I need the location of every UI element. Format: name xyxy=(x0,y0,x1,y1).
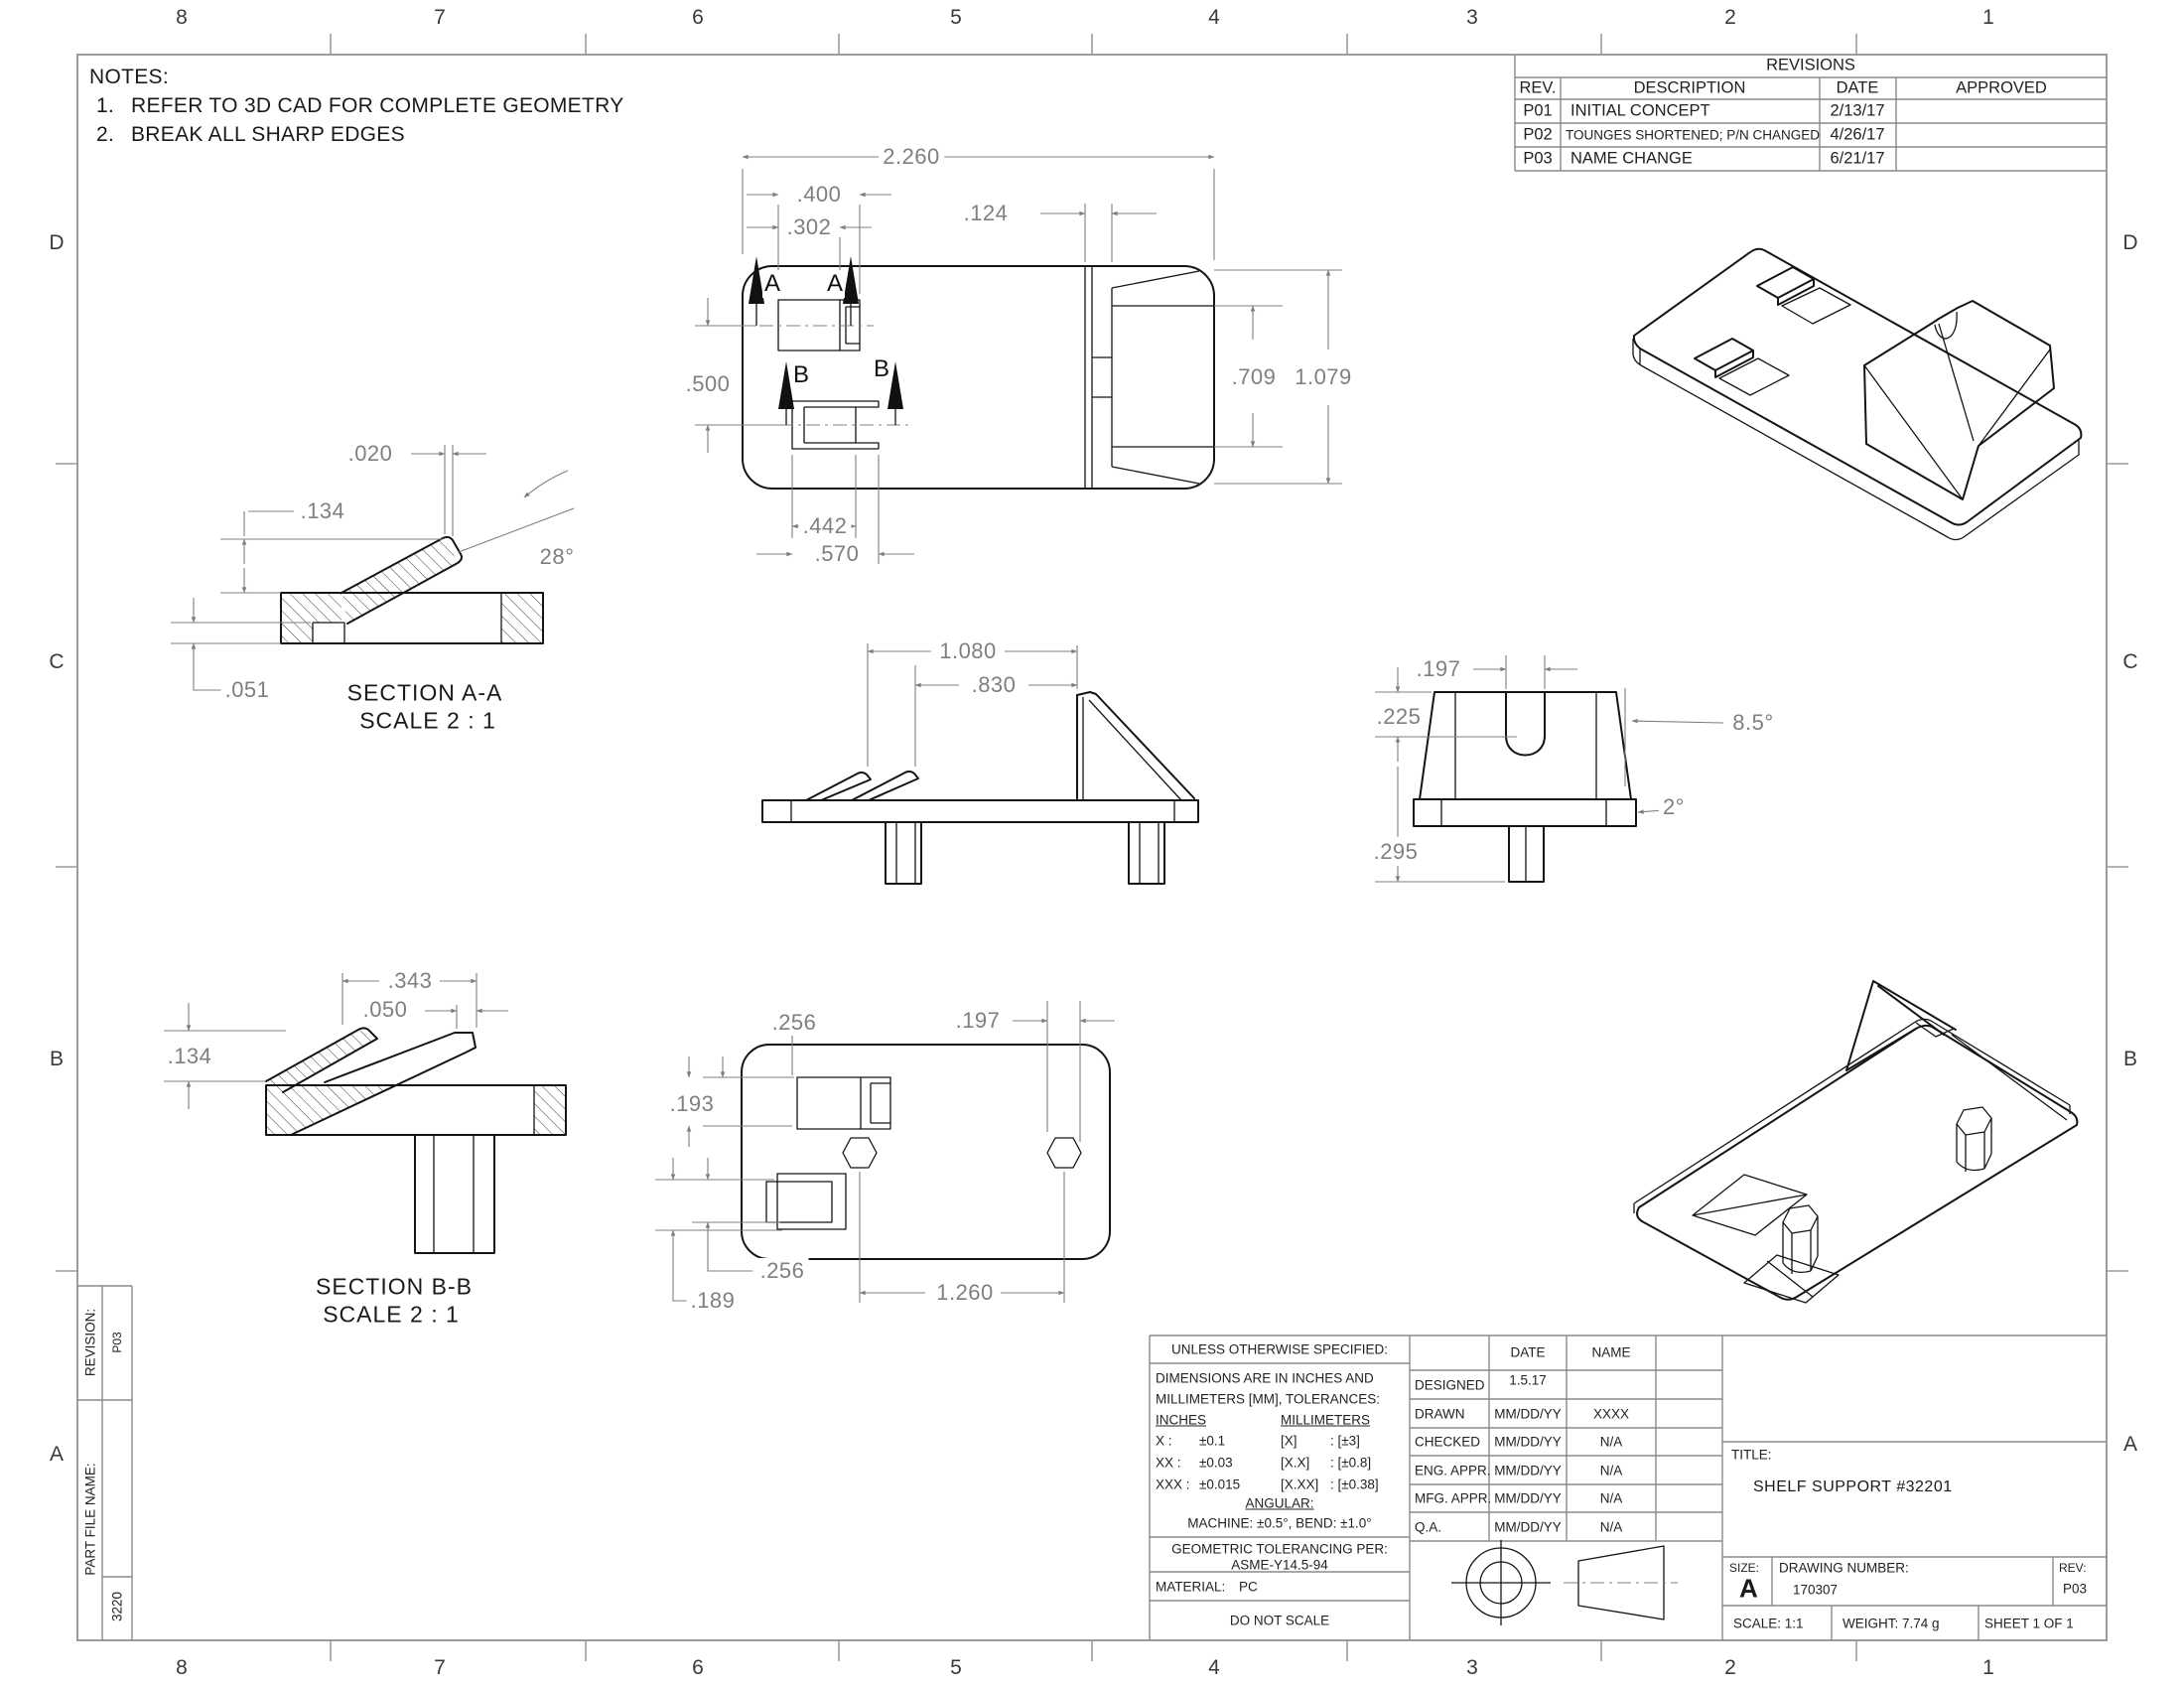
zone-left-d: D xyxy=(49,231,64,255)
signoff-checked-label: CHECKED xyxy=(1415,1435,1480,1450)
tol-mm-xx-label: [X.X] xyxy=(1281,1456,1309,1471)
zone-bottom-1: 1 xyxy=(1982,1656,1994,1680)
drawing-number-value: 170307 xyxy=(1793,1583,1838,1598)
inches-header: INCHES xyxy=(1156,1413,1206,1428)
section-bb-scale: SCALE 2 : 1 xyxy=(320,1302,463,1329)
signoff-designed-date: 1.5.17 xyxy=(1509,1373,1547,1388)
zone-bottom-5: 5 xyxy=(950,1656,962,1680)
dim-overall-height: 1.079 xyxy=(1291,364,1356,390)
dim-tip-thickness: .020 xyxy=(344,441,397,467)
dim-slot-d-offset: .256 xyxy=(756,1258,809,1284)
dim-peg-width: .197 xyxy=(952,1008,1005,1034)
rev-label: REV: xyxy=(2059,1561,2087,1575)
signoff-mfg-appr-label: MFG. APPR. xyxy=(1415,1491,1491,1506)
dim-pocket-height: .709 xyxy=(1228,364,1281,390)
signoff-checked-date: MM/DD/YY xyxy=(1494,1435,1562,1450)
scale-text: SCALE: 1:1 xyxy=(1733,1617,1804,1631)
dim-slot-height: .193 xyxy=(666,1091,719,1117)
signoff-eng-appr-date: MM/DD/YY xyxy=(1494,1464,1562,1478)
revisions-header-approved: APPROVED xyxy=(1956,79,2047,98)
geometric-tolerancing-line1: GEOMETRIC TOLERANCING PER: xyxy=(1171,1542,1388,1557)
iso-top-view xyxy=(1633,249,2081,540)
dim-tongue-offset: .830 xyxy=(968,672,1021,698)
tol-mm-xxx-label: [X.XX] xyxy=(1281,1477,1318,1492)
dim-slot-b-tongue: .442 xyxy=(799,513,852,539)
tol-xx-label: XX : xyxy=(1156,1456,1181,1471)
signoff-designed-label: DESIGNED xyxy=(1415,1378,1485,1393)
note-2-text: BREAK ALL SHARP EDGES xyxy=(131,123,405,147)
revision-row-desc: NAME CHANGE xyxy=(1570,150,1693,169)
zone-bottom-3: 3 xyxy=(1466,1656,1478,1680)
angular-header: ANGULAR: xyxy=(1245,1496,1313,1511)
revision-row-desc: TOUNGES SHORTENED; P/N CHANGED xyxy=(1566,128,1820,143)
dim-tongue-height: .134 xyxy=(164,1044,216,1069)
revision-row-rev: P01 xyxy=(1523,102,1552,121)
side-view xyxy=(1375,655,1723,882)
revisions-header-description: DESCRIPTION xyxy=(1634,79,1746,98)
tol-mm-x-value: : [±3] xyxy=(1330,1434,1360,1449)
material-label: MATERIAL: xyxy=(1156,1580,1225,1595)
tol-xx-value: ±0.03 xyxy=(1199,1456,1233,1471)
signoff-eng-appr-label: ENG. APPR. xyxy=(1415,1464,1491,1478)
dim-slot-offset: .256 xyxy=(768,1010,821,1036)
zone-bottom-8: 8 xyxy=(176,1656,188,1680)
section-mark-b: B xyxy=(791,361,811,389)
dim-step-height: .051 xyxy=(221,677,274,703)
revision-side-label: REVISION: xyxy=(83,1309,98,1376)
tol-mm-xxx-value: : [±0.38] xyxy=(1330,1477,1379,1492)
tol-x-label: X : xyxy=(1156,1434,1172,1449)
zone-top-4: 4 xyxy=(1208,6,1220,30)
revision-row-date: 2/13/17 xyxy=(1830,102,1884,121)
drawing-sheet: 8 7 6 5 4 3 2 1 8 7 6 5 4 3 2 1 D C B A … xyxy=(0,0,2184,1688)
dim-peg-pitch: 1.260 xyxy=(932,1280,998,1306)
zone-right-d: D xyxy=(2122,231,2137,255)
tol-xxx-label: XXX : xyxy=(1156,1477,1190,1492)
tol-xxx-value: ±0.015 xyxy=(1199,1477,1240,1492)
dim-wedge-offset: 1.080 xyxy=(935,638,1001,664)
signoff-mfg-appr-name: N/A xyxy=(1600,1491,1623,1506)
zone-left-c: C xyxy=(49,650,64,674)
revisions-header-date: DATE xyxy=(1837,79,1879,98)
dim-base-angle: 2° xyxy=(1659,794,1689,820)
revisions-header-rev: REV. xyxy=(1520,79,1557,98)
dim-tip-span: .343 xyxy=(384,968,437,994)
dim-slot-a-tongue: .302 xyxy=(783,214,836,240)
signoff-drawn-date: MM/DD/YY xyxy=(1494,1407,1562,1422)
dim-leg-length: .295 xyxy=(1370,839,1423,865)
zone-top-8: 8 xyxy=(176,6,188,30)
section-aa-view xyxy=(171,445,574,690)
zone-top-3: 3 xyxy=(1466,6,1478,30)
bottom-view xyxy=(655,1001,1115,1303)
zone-top-2: 2 xyxy=(1724,6,1736,30)
size-value: A xyxy=(1739,1574,1758,1605)
dim-tongue-height: .134 xyxy=(297,498,349,524)
dim-slot-b-width: .570 xyxy=(811,541,864,567)
zone-top-6: 6 xyxy=(692,6,704,30)
angular-value: MACHINE: ±0.5°, BEND: ±1.0° xyxy=(1187,1516,1371,1531)
section-bb-label: SECTION B-B xyxy=(313,1274,476,1301)
revision-row-date: 6/21/17 xyxy=(1830,150,1884,169)
revision-row-desc: INITIAL CONCEPT xyxy=(1570,102,1710,121)
unless-otherwise-specified: UNLESS OTHERWISE SPECIFIED: xyxy=(1171,1342,1388,1357)
geometric-tolerancing-line2: ASME-Y14.5-94 xyxy=(1231,1558,1328,1573)
signoff-drawn-name: XXXX xyxy=(1593,1407,1629,1422)
zone-left-a: A xyxy=(50,1443,64,1467)
revision-row-rev: P03 xyxy=(1523,150,1552,169)
dim-tip-notch: .050 xyxy=(359,997,412,1023)
dim-draft-angle: 8.5° xyxy=(1728,710,1777,736)
signoff-drawn-label: DRAWN xyxy=(1415,1407,1465,1422)
title-label: TITLE: xyxy=(1731,1448,1772,1463)
signoff-mfg-appr-date: MM/DD/YY xyxy=(1494,1491,1562,1506)
section-aa-label: SECTION A-A xyxy=(344,680,506,707)
drawing-geometry xyxy=(0,0,2184,1688)
revision-row-date: 4/26/17 xyxy=(1830,126,1884,145)
section-mark-a: A xyxy=(825,270,845,298)
zone-bottom-2: 2 xyxy=(1724,1656,1736,1680)
section-mark-b: B xyxy=(872,355,891,383)
revision-row-rev: P02 xyxy=(1523,126,1552,145)
weight-text: WEIGHT: 7.74 g xyxy=(1843,1617,1940,1631)
zone-right-b: B xyxy=(2123,1048,2137,1071)
dim-overall-width: 2.260 xyxy=(879,144,944,170)
zone-top-1: 1 xyxy=(1982,6,1994,30)
zone-right-a: A xyxy=(2123,1433,2137,1457)
signoff-header-date: DATE xyxy=(1510,1345,1545,1360)
dims-units-line2: MILLIMETERS [MM], TOLERANCES: xyxy=(1156,1392,1380,1407)
zone-left-b: B xyxy=(50,1048,64,1071)
section-mark-a: A xyxy=(762,270,782,298)
signoff-checked-name: N/A xyxy=(1600,1435,1623,1450)
material-value: PC xyxy=(1239,1580,1258,1595)
zone-bottom-6: 6 xyxy=(692,1656,704,1680)
revision-side-value: P03 xyxy=(110,1332,124,1352)
dim-slot-gap: .500 xyxy=(682,371,735,397)
note-2-num: 2. xyxy=(96,123,114,147)
dim-slot-width: .197 xyxy=(1413,656,1465,682)
signoff-qa-date: MM/DD/YY xyxy=(1494,1520,1562,1535)
tol-x-value: ±0.1 xyxy=(1199,1434,1225,1449)
dim-slot-a-width: .400 xyxy=(793,182,846,208)
dim-edge-offset: .189 xyxy=(687,1288,740,1314)
dim-tongue-angle: 28° xyxy=(536,544,579,570)
zone-bottom-4: 4 xyxy=(1208,1656,1220,1680)
dim-slot-depth: .225 xyxy=(1373,704,1426,730)
revisions-title: REVISIONS xyxy=(1766,57,1855,75)
signoff-qa-name: N/A xyxy=(1600,1520,1623,1535)
notes-title: NOTES: xyxy=(89,66,169,89)
sheet-text: SHEET 1 OF 1 xyxy=(1984,1617,2074,1631)
dims-units-line1: DIMENSIONS ARE IN INCHES AND xyxy=(1156,1371,1374,1386)
part-file-value: 3220 xyxy=(110,1592,125,1621)
note-1-num: 1. xyxy=(96,94,114,118)
zone-bottom-7: 7 xyxy=(434,1656,446,1680)
iso-bottom-view xyxy=(1634,981,2077,1303)
tol-mm-x-label: [X] xyxy=(1281,1434,1297,1449)
projection-symbol xyxy=(1451,1540,1678,1625)
zone-right-c: C xyxy=(2122,650,2137,674)
drawing-number-label: DRAWING NUMBER: xyxy=(1779,1561,1909,1576)
millimeters-header: MILLIMETERS xyxy=(1281,1413,1370,1428)
rev-value: P03 xyxy=(2063,1582,2087,1597)
signoff-header-name: NAME xyxy=(1591,1345,1630,1360)
signoff-eng-appr-name: N/A xyxy=(1600,1464,1623,1478)
do-not-scale: DO NOT SCALE xyxy=(1230,1614,1329,1628)
part-file-label: PART FILE NAME: xyxy=(83,1463,98,1575)
tol-mm-xx-value: : [±0.8] xyxy=(1330,1456,1371,1471)
note-1-text: REFER TO 3D CAD FOR COMPLETE GEOMETRY xyxy=(131,94,624,118)
zone-top-7: 7 xyxy=(434,6,446,30)
signoff-qa-label: Q.A. xyxy=(1415,1520,1441,1535)
zone-top-5: 5 xyxy=(950,6,962,30)
section-aa-scale: SCALE 2 : 1 xyxy=(356,708,499,735)
part-title: SHELF SUPPORT #32201 xyxy=(1753,1478,1953,1496)
dim-pocket-lip: .124 xyxy=(960,201,1013,226)
